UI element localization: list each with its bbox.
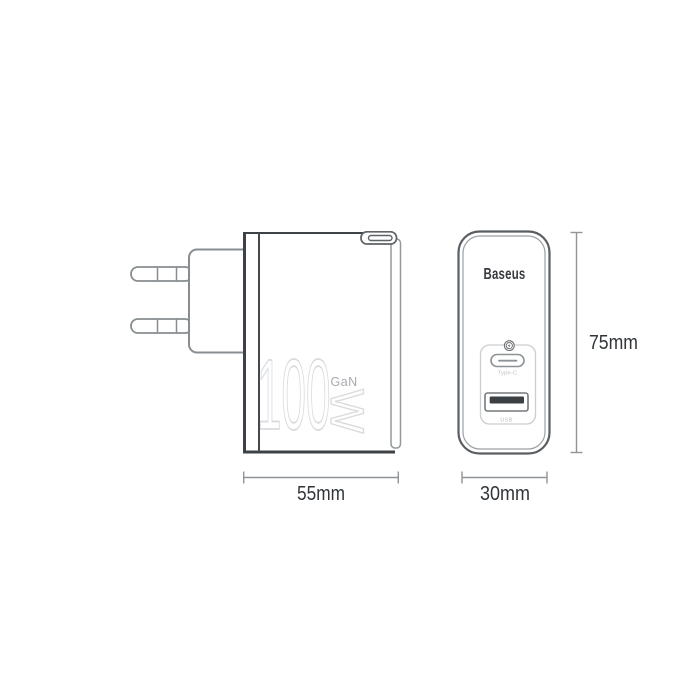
clip-detail [361,232,397,244]
dimension-front-width: 30mm [462,472,547,506]
watermark-w: W [321,389,374,434]
plug-prong-bottom [131,319,192,333]
fast-charge-icon [504,341,514,351]
front-view: Baseus Type-C USB [459,232,550,454]
type-c-port [491,355,524,367]
product-diagram: 100 W GaN Baseus Type-C USB [0,0,700,700]
height-label: 75mm [589,332,638,354]
back-plate [391,239,401,448]
front-width-label: 30mm [480,483,530,505]
dimension-height: 75mm [571,233,639,453]
type-c-port-label: Type-C [498,371,518,377]
dimension-side-width: 55mm [244,472,399,506]
plug-prong-top [131,267,192,281]
brand-logo: Baseus [484,266,526,283]
side-width-label: 55mm [297,483,345,505]
side-view: 100 W GaN [131,232,401,453]
usb-port-label: USB [500,418,512,424]
usb-a-port [485,393,528,411]
watermark-gan: GaN [331,375,358,389]
watermark-100: 100 [257,340,330,451]
